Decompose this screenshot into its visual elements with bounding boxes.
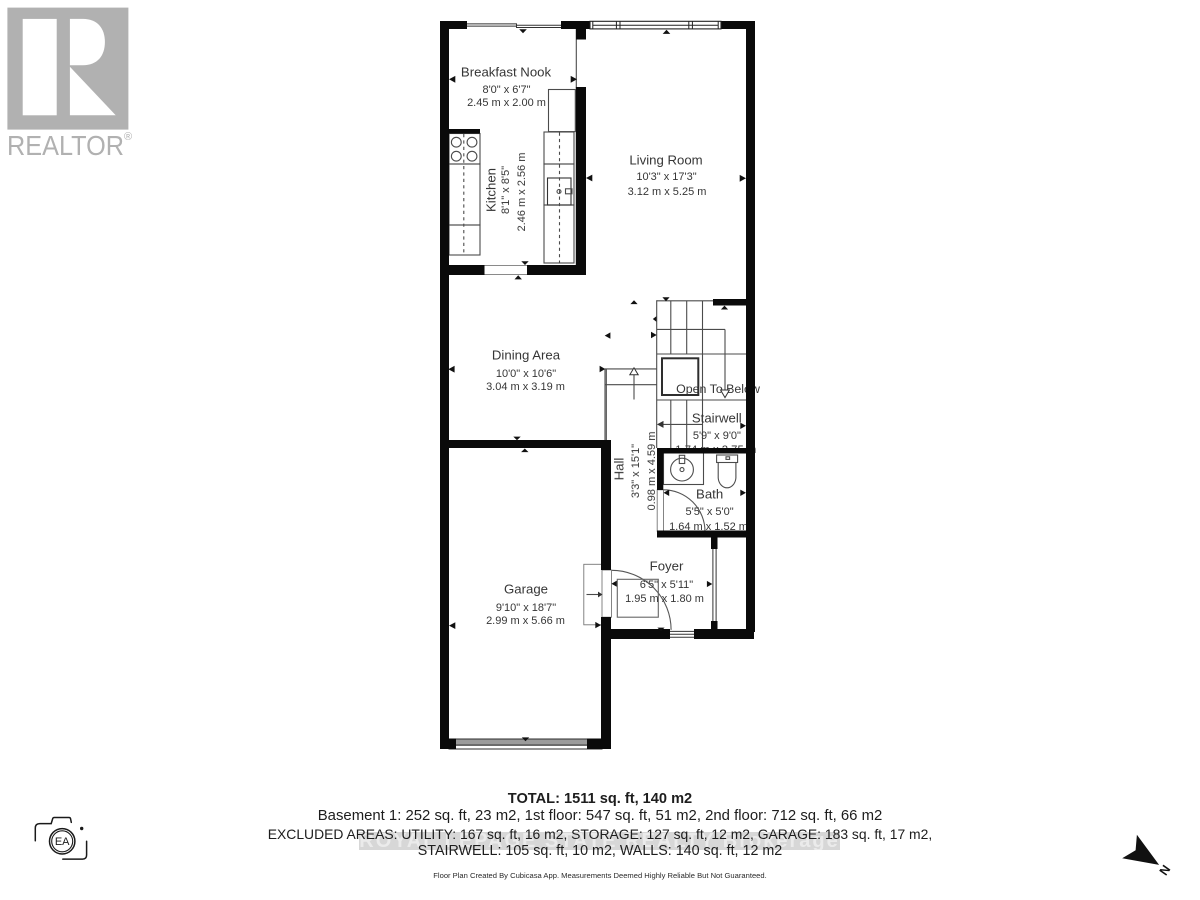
svg-text:REALTOR: REALTOR — [7, 130, 124, 161]
svg-text:®: ® — [124, 131, 132, 143]
